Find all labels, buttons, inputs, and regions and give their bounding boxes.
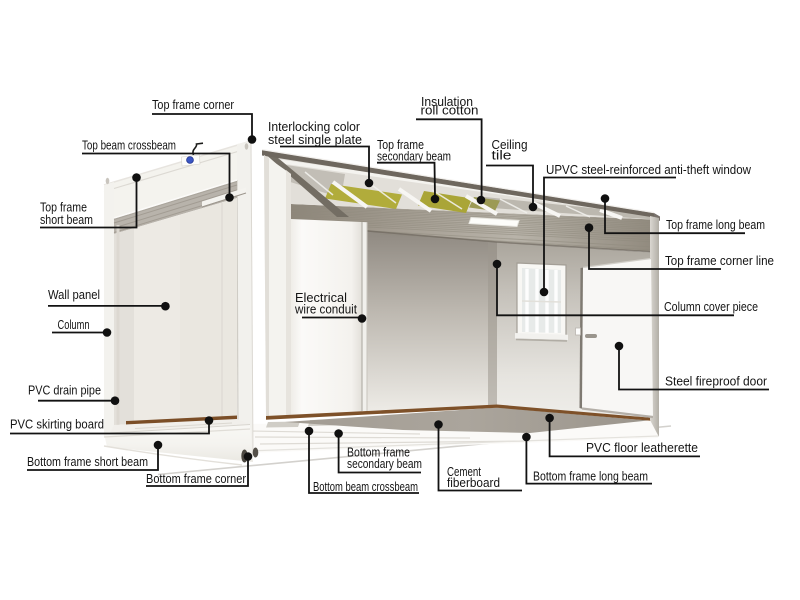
svg-text:Top frame corner line: Top frame corner line (665, 254, 774, 268)
svg-text:fiberboard: fiberboard (447, 476, 500, 490)
svg-text:Column cover piece: Column cover piece (664, 300, 758, 314)
svg-text:Bottom beam crossbeam: Bottom beam crossbeam (313, 480, 418, 494)
svg-text:Column: Column (58, 318, 90, 332)
svg-text:Bottom frame corner: Bottom frame corner (146, 472, 246, 486)
svg-text:steel single plate: steel single plate (268, 133, 362, 147)
svg-text:Bottom frame short beam: Bottom frame short beam (27, 455, 148, 469)
svg-text:Steel fireproof door: Steel fireproof door (665, 375, 767, 389)
svg-text:Top frame long beam: Top frame long beam (666, 218, 765, 232)
svg-text:secondary beam: secondary beam (377, 150, 451, 164)
svg-text:short beam: short beam (40, 213, 93, 227)
svg-text:roll cotton: roll cotton (421, 104, 479, 118)
svg-text:PVC floor leatherette: PVC floor leatherette (586, 441, 698, 455)
svg-text:PVC skirting board: PVC skirting board (10, 418, 104, 432)
svg-text:PVC drain pipe: PVC drain pipe (28, 384, 101, 398)
svg-text:UPVC steel-reinforced anti-the: UPVC steel-reinforced anti-theft window (546, 163, 752, 177)
svg-text:Interlocking color: Interlocking color (268, 120, 360, 134)
svg-text:wire conduit: wire conduit (294, 303, 357, 317)
svg-text:tile: tile (492, 149, 512, 163)
svg-text:secondary beam: secondary beam (347, 457, 422, 471)
svg-text:Bottom frame long beam: Bottom frame long beam (533, 470, 648, 484)
svg-text:Top frame corner: Top frame corner (152, 98, 234, 112)
svg-text:Top beam crossbeam: Top beam crossbeam (82, 139, 176, 153)
svg-text:Wall panel: Wall panel (48, 288, 100, 302)
